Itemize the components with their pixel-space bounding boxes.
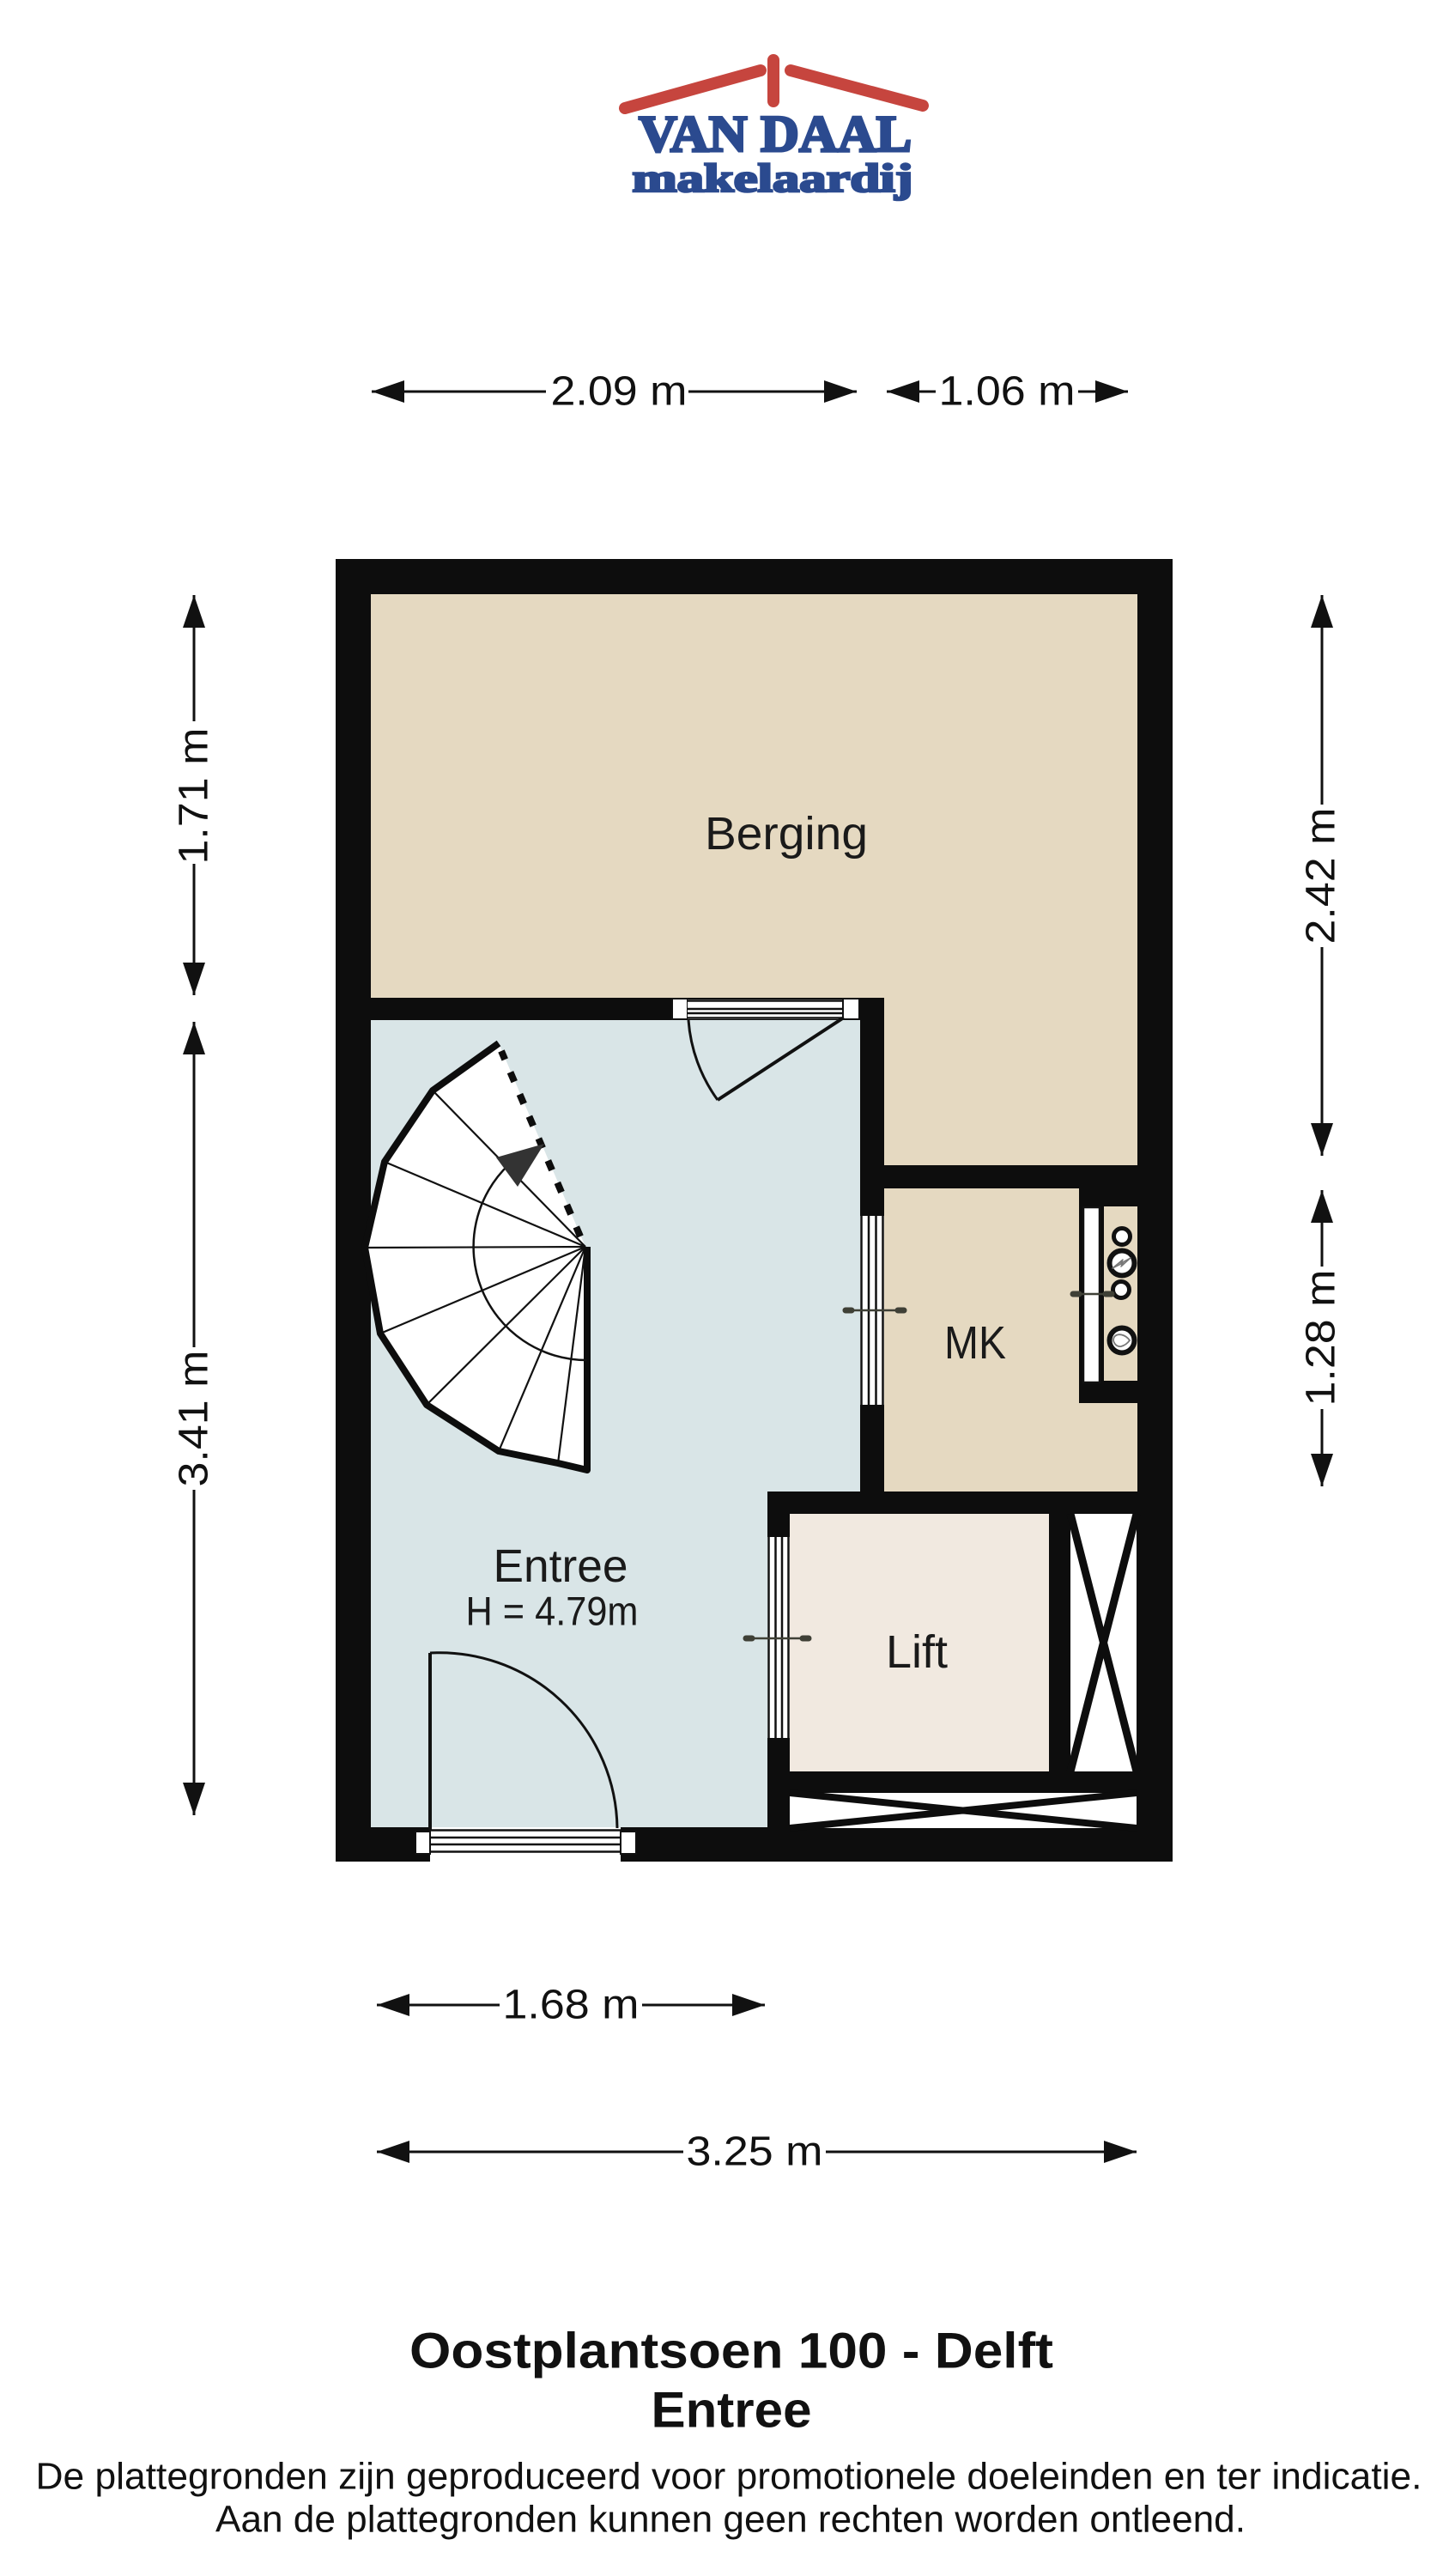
svg-text:MK: MK — [944, 1317, 1006, 1369]
svg-text:makelaardij: makelaardij — [633, 156, 913, 201]
svg-text:Entree: Entree — [494, 1540, 628, 1592]
svg-text:Berging: Berging — [705, 808, 868, 860]
svg-text:1.06 m: 1.06 m — [939, 369, 1076, 415]
svg-text:H = 4.79m: H = 4.79m — [466, 1589, 639, 1634]
svg-text:2.42 m: 2.42 m — [1299, 808, 1344, 945]
svg-text:Aan de plattegronden kunnen ge: Aan de plattegronden kunnen geen rechten… — [215, 2499, 1246, 2541]
svg-text:1.71 m: 1.71 m — [172, 728, 217, 865]
svg-text:3.41 m: 3.41 m — [172, 1351, 217, 1487]
svg-text:Lift: Lift — [886, 1626, 948, 1678]
svg-text:1.28 m: 1.28 m — [1299, 1270, 1344, 1406]
svg-text:De plattegronden zijn geproduc: De plattegronden zijn geproduceerd voor … — [36, 2456, 1422, 2498]
svg-text:3.25 m: 3.25 m — [687, 2129, 823, 2175]
svg-text:1.68 m: 1.68 m — [503, 1983, 640, 2028]
svg-text:VAN DAAL: VAN DAAL — [639, 106, 912, 162]
svg-text:2.09 m: 2.09 m — [551, 369, 688, 415]
svg-text:Oostplantsoen 100 - Delft: Oostplantsoen 100 - Delft — [409, 2324, 1053, 2379]
svg-text:Entree: Entree — [652, 2383, 812, 2439]
